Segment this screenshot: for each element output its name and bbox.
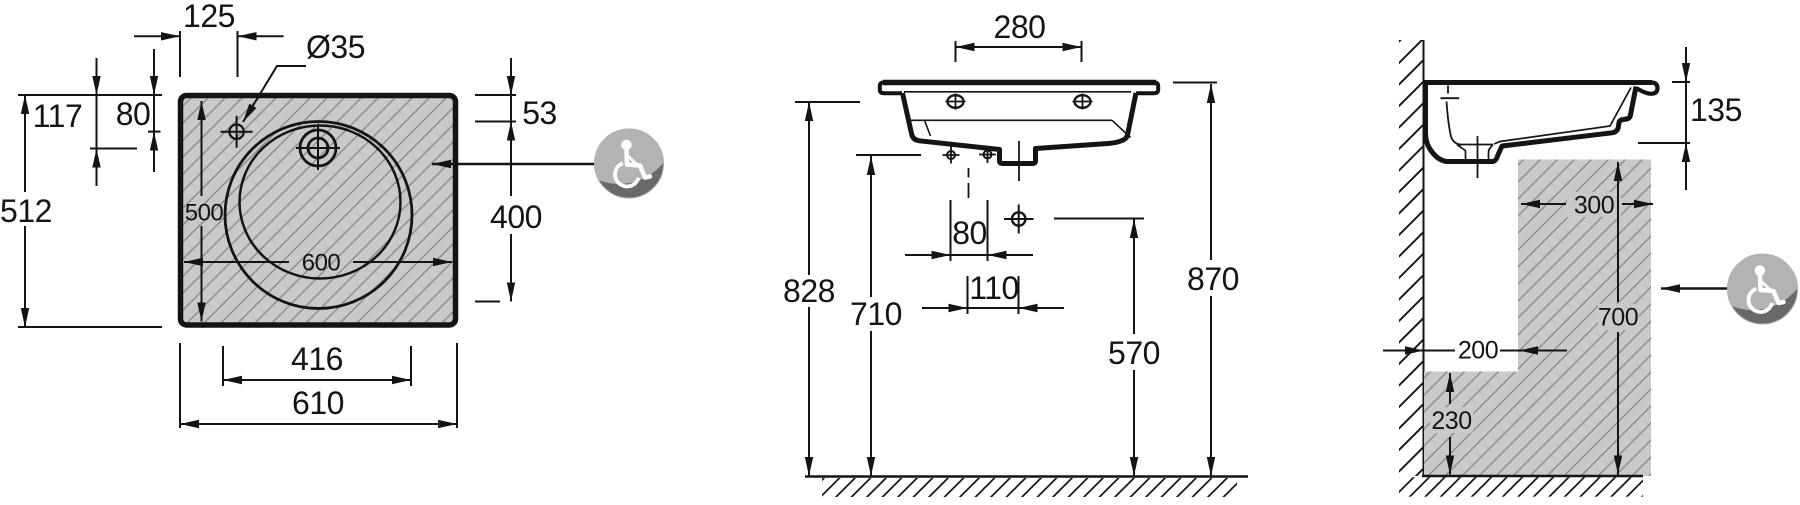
svg-text:53: 53 — [522, 95, 557, 131]
svg-text:125: 125 — [183, 0, 235, 34]
svg-text:512: 512 — [0, 193, 52, 229]
svg-text:416: 416 — [291, 341, 343, 377]
svg-text:80: 80 — [116, 96, 151, 132]
svg-text:600: 600 — [302, 250, 341, 277]
svg-text:828: 828 — [783, 273, 835, 309]
svg-text:230: 230 — [1431, 407, 1471, 435]
svg-text:135: 135 — [1690, 92, 1742, 128]
svg-text:710: 710 — [850, 296, 902, 332]
svg-text:700: 700 — [1598, 304, 1638, 332]
svg-text:400: 400 — [490, 199, 542, 235]
svg-text:80: 80 — [952, 215, 987, 251]
svg-text:300: 300 — [1574, 192, 1614, 220]
svg-text:280: 280 — [994, 9, 1046, 45]
svg-text:110: 110 — [969, 270, 1019, 306]
svg-text:610: 610 — [292, 385, 344, 421]
svg-text:570: 570 — [1108, 335, 1160, 371]
svg-text:870: 870 — [1187, 261, 1239, 297]
svg-text:117: 117 — [33, 98, 83, 134]
svg-text:Ø35: Ø35 — [306, 29, 365, 65]
svg-text:200: 200 — [1458, 337, 1498, 365]
svg-text:500: 500 — [185, 200, 224, 227]
